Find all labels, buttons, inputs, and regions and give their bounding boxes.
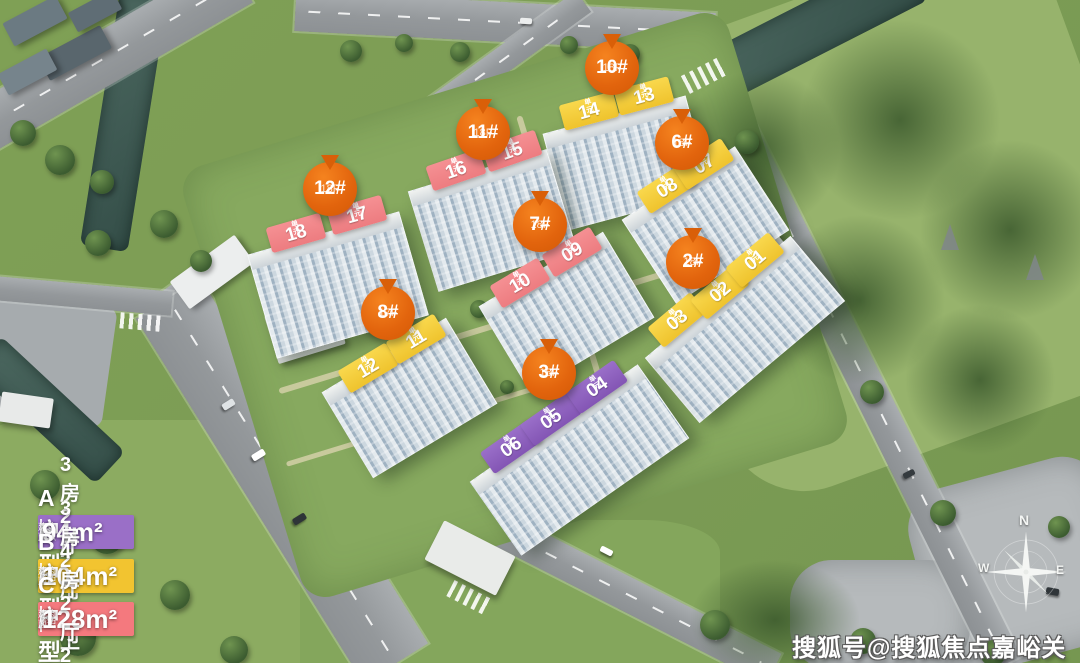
badge-tail — [474, 99, 492, 123]
tree — [45, 145, 75, 175]
building-floors: 18F — [531, 219, 550, 231]
badge-tail — [603, 34, 621, 58]
building-floors: 18F — [540, 367, 559, 379]
tree — [90, 170, 114, 194]
building-floors: 18F — [684, 256, 703, 268]
tree — [700, 610, 730, 640]
tree — [500, 380, 514, 394]
tree — [450, 42, 470, 62]
watermark-text: 搜狐号@搜狐焦点嘉峪关站 — [792, 628, 1080, 663]
badge-tail — [540, 339, 558, 363]
power-pylon — [1026, 254, 1044, 280]
badge-tail — [531, 191, 549, 215]
low-rise-roof — [2, 0, 67, 47]
compass-east-label: E — [1056, 563, 1064, 577]
crosswalk — [119, 312, 160, 331]
building-floors: 18F — [603, 62, 622, 74]
badge-tail — [673, 109, 691, 133]
compass-west-label: W — [978, 561, 989, 575]
vehicle — [520, 18, 532, 25]
badge-tail — [321, 155, 339, 179]
power-pylon — [941, 224, 959, 250]
building-floors: 18F — [673, 137, 692, 149]
badge-tail — [379, 279, 397, 303]
legend-room-layout: 4房2厅2卫 — [60, 541, 81, 663]
tree — [735, 130, 759, 154]
tree — [560, 36, 578, 54]
building-floors: 17F — [379, 307, 398, 319]
compass-north-label: N — [1019, 512, 1029, 528]
building-floors: 18F — [474, 127, 493, 139]
tree — [150, 210, 178, 238]
aerial-site-plan: 14单元 13单元 16单元 15单元 18单元 17单元 08单元 07单元 … — [0, 0, 1080, 663]
tree — [10, 120, 36, 146]
building-floors: 18F — [321, 183, 340, 195]
tree — [930, 500, 956, 526]
tree — [860, 380, 884, 404]
tree — [395, 34, 413, 52]
tree — [340, 40, 362, 62]
tree-cluster — [905, 305, 1055, 455]
tree — [220, 636, 248, 663]
tree — [85, 230, 111, 256]
tree — [160, 580, 190, 610]
tree — [190, 250, 212, 272]
badge-tail — [684, 228, 702, 252]
